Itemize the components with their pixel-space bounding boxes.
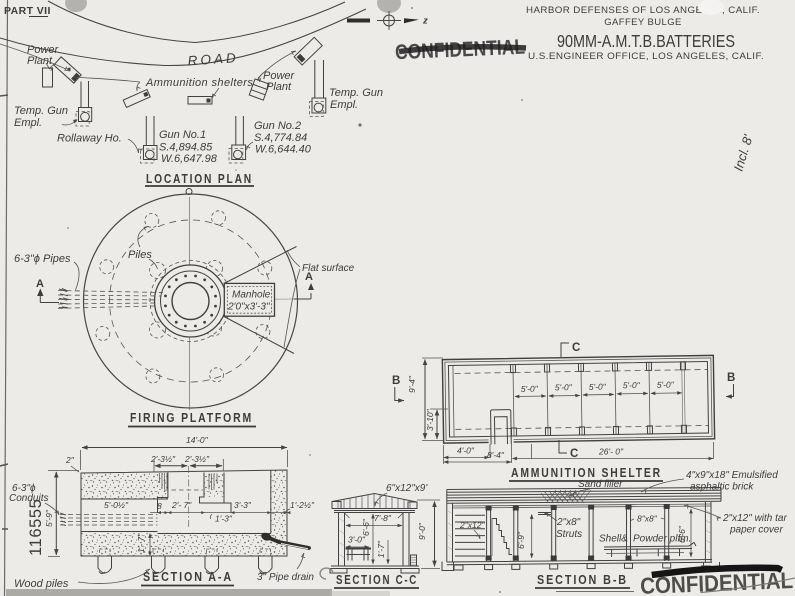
svg-text:Rollaway Ho.: Rollaway Ho. bbox=[57, 133, 122, 145]
svg-text:AMMUNITION SHELTER: AMMUNITION SHELTER bbox=[511, 466, 662, 480]
svg-text:4"x9"x18" Emulsified: 4"x9"x18" Emulsified bbox=[686, 470, 778, 481]
svg-text:Ammunition shelters: Ammunition shelters bbox=[145, 77, 253, 89]
svg-text:S.4,774.84: S.4,774.84 bbox=[254, 132, 307, 144]
svg-text:6-3"ɸ Pipes: 6-3"ɸ Pipes bbox=[14, 253, 71, 265]
svg-text:5'-0": 5'-0" bbox=[589, 382, 607, 392]
svg-text:2"x12": 2"x12" bbox=[459, 520, 485, 530]
svg-text:9'-0": 9'-0" bbox=[417, 522, 427, 540]
svg-text:Shell&: Shell& bbox=[599, 534, 628, 545]
svg-text:z: z bbox=[422, 16, 428, 27]
svg-text:Manhole: Manhole bbox=[232, 290, 271, 301]
svg-text:1'- 7": 1'- 7" bbox=[136, 533, 146, 553]
svg-text:2'0"x3'-3": 2'0"x3'-3" bbox=[227, 302, 270, 313]
svg-text:3'-0": 3'-0" bbox=[348, 535, 366, 545]
svg-text:Gun No.2: Gun No.2 bbox=[254, 120, 301, 132]
svg-text:Powder plfm.: Powder plfm. bbox=[633, 534, 691, 545]
svg-text:Struts: Struts bbox=[556, 529, 582, 540]
svg-text:C: C bbox=[572, 342, 580, 354]
svg-text:A: A bbox=[36, 278, 44, 290]
svg-text:2'- 7": 2'- 7" bbox=[171, 500, 192, 510]
svg-text:1'-2½": 1'-2½" bbox=[290, 500, 315, 510]
svg-text:Empl.: Empl. bbox=[14, 117, 42, 129]
svg-text:26'- 0": 26'- 0" bbox=[598, 447, 624, 457]
svg-text:6'-6": 6'-6" bbox=[361, 518, 371, 536]
svg-text:1'-7": 1'-7" bbox=[376, 540, 386, 558]
svg-text:2": 2" bbox=[65, 455, 75, 465]
svg-text:HARBOR DEFENSES OF LOS ANGELES: HARBOR DEFENSES OF LOS ANGELES, CALIF. bbox=[526, 5, 760, 16]
svg-text:1'-3": 1'-3" bbox=[215, 514, 233, 524]
svg-text:5'-9": 5'-9" bbox=[44, 509, 54, 527]
svg-text:U.S.ENGINEER OFFICE, LOS ANGEL: U.S.ENGINEER OFFICE, LOS ANGELES, CALIF. bbox=[528, 51, 764, 62]
svg-text:Gun No.1: Gun No.1 bbox=[159, 129, 206, 141]
svg-text:116555: 116555 bbox=[27, 499, 45, 556]
svg-text:3'-3": 3'-3" bbox=[234, 500, 252, 510]
svg-text:Plant: Plant bbox=[266, 81, 292, 93]
svg-text:FIRING PLATFORM: FIRING PLATFORM bbox=[130, 411, 253, 425]
svg-text:9'-4": 9'-4" bbox=[407, 375, 417, 393]
svg-text:B: B bbox=[727, 372, 735, 384]
svg-text:B: B bbox=[392, 375, 400, 387]
svg-text:Temp. Gun: Temp. Gun bbox=[329, 87, 383, 99]
svg-text:90MM-A.M.T.B.BATTERIES: 90MM-A.M.T.B.BATTERIES bbox=[557, 31, 735, 51]
svg-text:paper cover: paper cover bbox=[729, 525, 783, 536]
svg-text:5'-0": 5'-0" bbox=[623, 380, 641, 390]
svg-text:SECTION C-C: SECTION C-C bbox=[336, 573, 418, 587]
svg-text:7'-8": 7'-8" bbox=[374, 513, 392, 523]
svg-text:8'-4": 8'-4" bbox=[487, 450, 505, 460]
svg-text:5'-0": 5'-0" bbox=[657, 379, 675, 389]
svg-text:S.4,894.85: S.4,894.85 bbox=[159, 142, 213, 154]
svg-text:5'-0": 5'-0" bbox=[521, 384, 539, 394]
svg-text:LOCATION PLAN: LOCATION PLAN bbox=[146, 172, 253, 186]
svg-text:3" Pipe drain: 3" Pipe drain bbox=[257, 572, 314, 583]
svg-text:W.6,644.40: W.6,644.40 bbox=[255, 144, 312, 156]
svg-text:Piles: Piles bbox=[128, 249, 152, 261]
svg-text:Empl.: Empl. bbox=[330, 99, 358, 111]
svg-text:PART VII: PART VII bbox=[4, 5, 51, 17]
svg-text:14'-0": 14'-0" bbox=[186, 435, 209, 445]
svg-text:Sand filler: Sand filler bbox=[578, 479, 623, 490]
svg-text:5'-0": 5'-0" bbox=[555, 382, 573, 392]
svg-text:SECTION B-B: SECTION B-B bbox=[537, 573, 628, 587]
svg-text:2'-3½": 2'-3½" bbox=[184, 454, 210, 464]
svg-text:Temp. Gun: Temp. Gun bbox=[14, 105, 68, 117]
svg-text:3'-10": 3'-10" bbox=[425, 408, 435, 431]
svg-text:2"x8": 2"x8" bbox=[556, 517, 581, 528]
svg-text:Wood piles: Wood piles bbox=[14, 578, 69, 590]
svg-text:6'-9": 6'-9" bbox=[516, 531, 526, 549]
svg-text:W.6,647.98: W.6,647.98 bbox=[161, 153, 218, 165]
svg-text:A: A bbox=[305, 271, 313, 283]
svg-text:8"x8": 8"x8" bbox=[637, 514, 658, 524]
svg-text:Plant: Plant bbox=[27, 55, 53, 67]
svg-text:asphaltic brick: asphaltic brick bbox=[690, 482, 754, 493]
svg-text:SECTION A-A: SECTION A-A bbox=[143, 570, 233, 584]
svg-text:4'-0": 4'-0" bbox=[457, 446, 475, 456]
svg-text:GAFFEY BULGE: GAFFEY BULGE bbox=[604, 17, 681, 28]
svg-text:5'-0½": 5'-0½" bbox=[104, 500, 129, 510]
svg-text:8: 8 bbox=[157, 501, 162, 511]
svg-text:2"x12" with tar: 2"x12" with tar bbox=[722, 513, 787, 524]
svg-text:6"x12"x9': 6"x12"x9' bbox=[386, 483, 428, 494]
